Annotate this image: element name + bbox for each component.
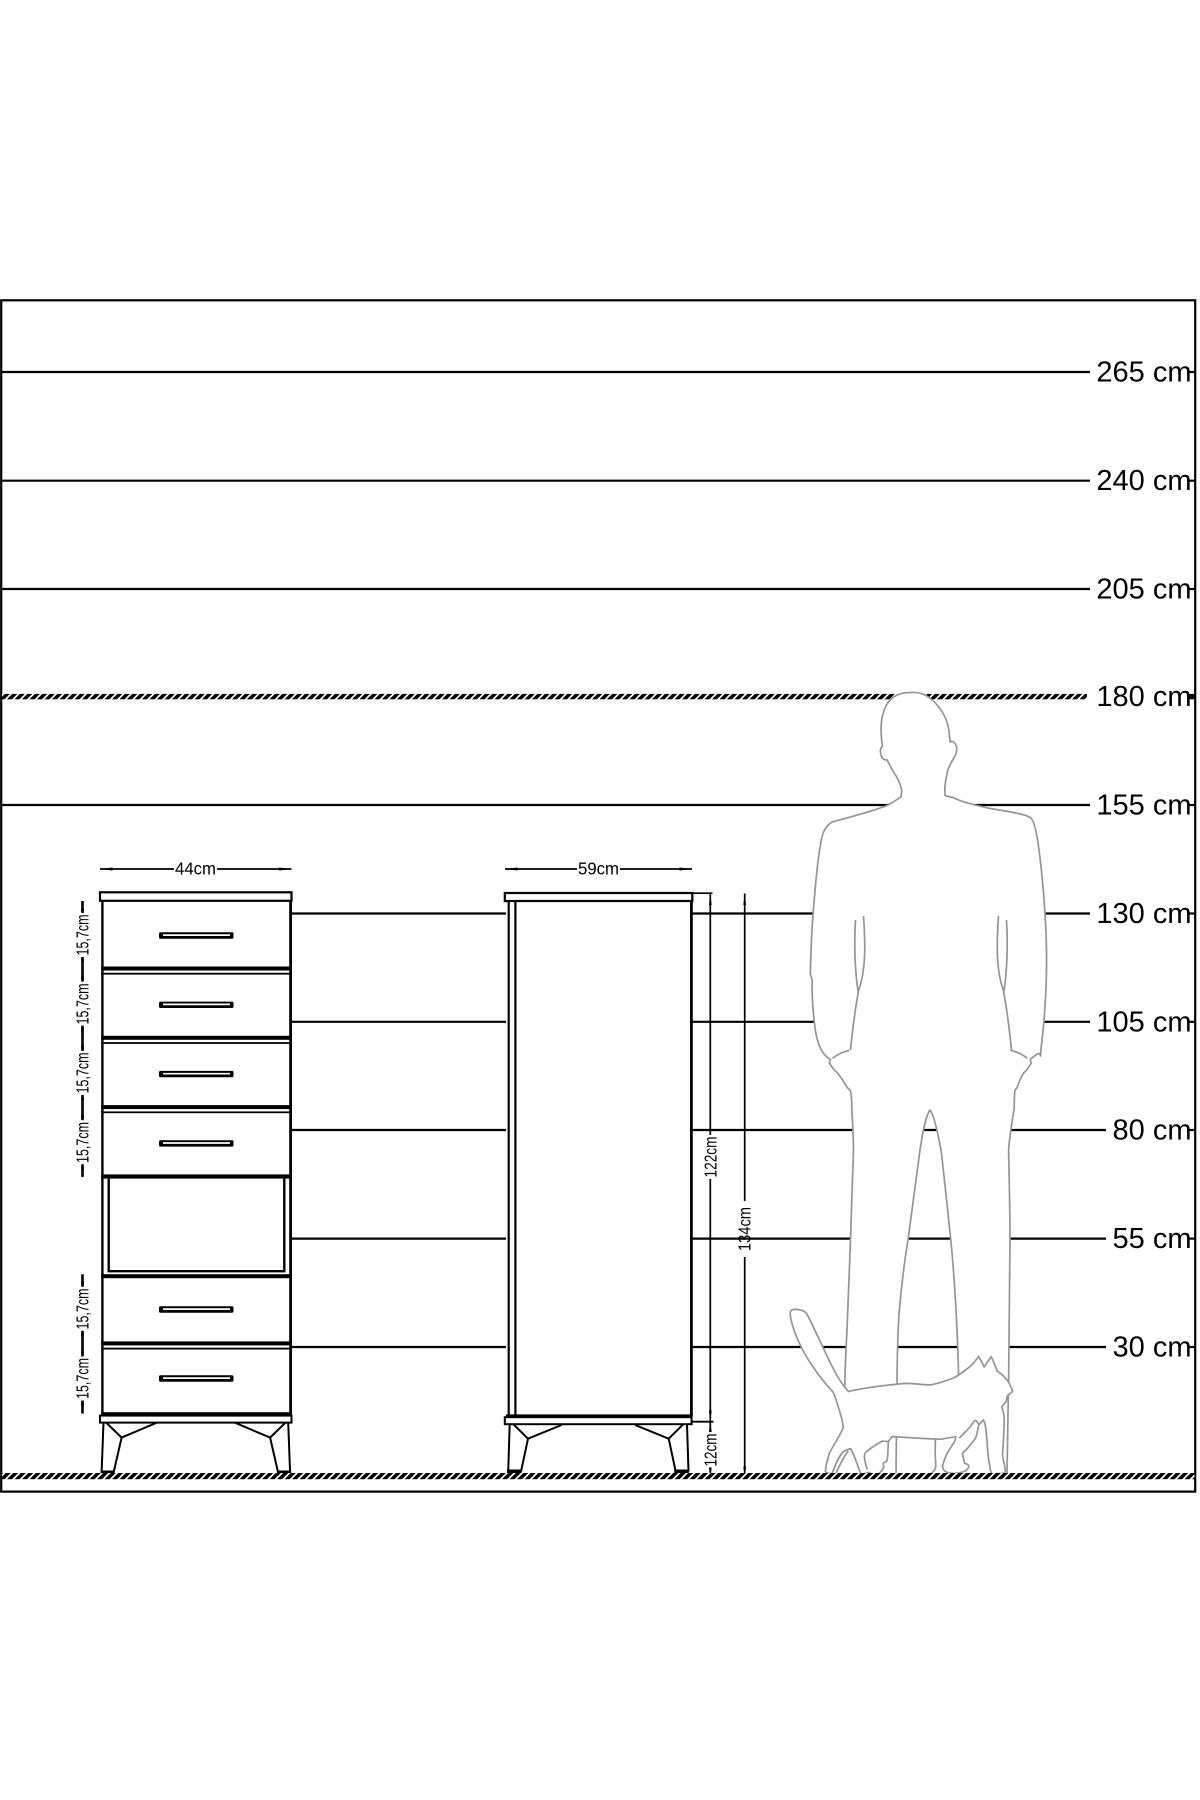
svg-text:15,7cm: 15,7cm xyxy=(73,1289,93,1330)
svg-text:155 cm: 155 cm xyxy=(1096,790,1191,822)
svg-text:80 cm: 80 cm xyxy=(1113,1115,1192,1147)
svg-text:55 cm: 55 cm xyxy=(1113,1223,1192,1255)
svg-text:134cm: 134cm xyxy=(735,1207,755,1251)
svg-text:59cm: 59cm xyxy=(578,859,619,879)
svg-text:180 cm: 180 cm xyxy=(1096,681,1191,713)
svg-text:15,7cm: 15,7cm xyxy=(73,1122,93,1163)
svg-text:15,7cm: 15,7cm xyxy=(73,984,93,1025)
svg-text:130 cm: 130 cm xyxy=(1096,898,1191,930)
svg-text:205 cm: 205 cm xyxy=(1096,574,1191,606)
svg-text:15,7cm: 15,7cm xyxy=(73,1053,93,1094)
svg-text:15,7cm: 15,7cm xyxy=(73,1358,93,1399)
svg-text:30 cm: 30 cm xyxy=(1113,1332,1192,1364)
svg-text:105 cm: 105 cm xyxy=(1096,1006,1191,1038)
svg-text:265 cm: 265 cm xyxy=(1096,357,1191,389)
svg-text:240 cm: 240 cm xyxy=(1096,465,1191,497)
svg-text:122cm: 122cm xyxy=(700,1137,720,1178)
svg-text:15,7cm: 15,7cm xyxy=(73,915,93,956)
svg-text:44cm: 44cm xyxy=(175,859,216,879)
svg-text:12cm: 12cm xyxy=(700,1434,720,1467)
